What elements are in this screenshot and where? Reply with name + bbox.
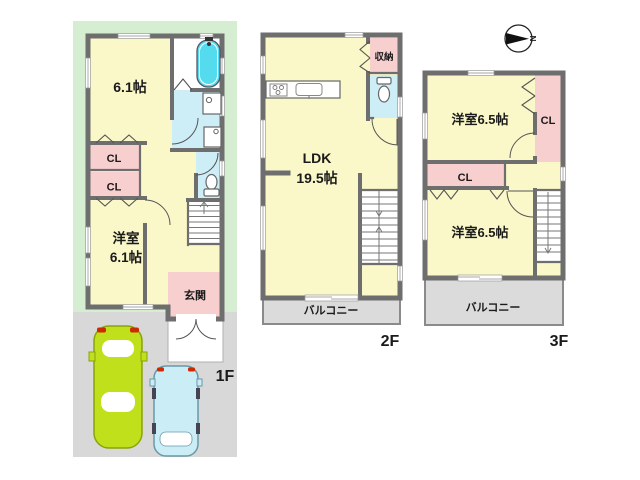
car-taillight — [157, 368, 164, 372]
balcony-label-2f: バルコニー — [304, 304, 359, 317]
room-label-bedroom-bottom-1f-name: 洋室 — [113, 230, 140, 246]
balcony-label-3f: バルコニー — [466, 301, 521, 314]
closet-label: CL — [458, 172, 473, 184]
washbasin-icon — [203, 93, 221, 114]
car-taillight — [130, 328, 139, 333]
car-taillight — [97, 328, 106, 333]
car-lime — [89, 326, 147, 448]
toilet-icon-2f — [377, 78, 391, 103]
room-label-bedroom-top-3f: 洋室6.5帖 — [451, 112, 508, 127]
floor-label-3f: 3F — [550, 333, 569, 350]
car-tire — [196, 423, 200, 434]
closet-label: CL — [107, 182, 122, 194]
car-tire — [152, 423, 156, 434]
car-taillight — [188, 368, 195, 372]
floor-plan-page: 6.1帖 CL CL 洋室 6.1帖 玄関 1F — [0, 0, 640, 480]
entrance-label: 玄関 — [184, 288, 206, 302]
car-rear-window — [102, 340, 134, 357]
car-mirror — [89, 352, 95, 361]
car-mirror — [150, 379, 155, 386]
stove-icon — [270, 84, 287, 96]
floor-plan-1f: 6.1帖 CL CL 洋室 6.1帖 玄関 1F — [73, 21, 237, 457]
room-label-bedroom-bottom-3f: 洋室6.5帖 — [451, 225, 508, 240]
floor-plan-drawing: 6.1帖 CL CL 洋室 6.1帖 玄関 1F — [0, 0, 640, 480]
closet-label: CL — [107, 153, 122, 165]
rooms-3f — [425, 73, 563, 278]
room-label-ldk-name: LDK — [303, 150, 332, 166]
room-label-bedroom-bottom-1f-size: 6.1帖 — [110, 249, 143, 265]
balcony-sliding-door — [458, 275, 502, 281]
balcony-sliding-door — [305, 295, 358, 301]
storage-label: 収納 — [374, 51, 393, 63]
kitchen-counter — [266, 81, 340, 99]
floor-plan-3f: N — [423, 25, 569, 350]
car-mirror — [141, 352, 147, 361]
car-mirror — [197, 379, 202, 386]
room-label-ldk-size: 19.5帖 — [296, 170, 337, 186]
floor-plan-2f: LDK 19.5帖 収納 バルコニー 2F — [261, 33, 403, 351]
car-tire — [196, 388, 200, 399]
closet-label: CL — [541, 115, 556, 127]
car-windshield — [160, 432, 192, 446]
car-tire — [152, 388, 156, 399]
floor-label-2f: 2F — [381, 333, 400, 350]
washing-machine-icon — [204, 127, 221, 147]
car-pale-blue — [150, 366, 202, 456]
compass-icon: N — [505, 25, 537, 52]
room-label-bedroom-top-1f: 6.1帖 — [113, 79, 146, 95]
compass-north-label: N — [528, 36, 537, 42]
floor-label-1f: 1F — [216, 368, 235, 385]
bathtub-icon — [197, 37, 220, 87]
car-windshield — [101, 392, 135, 412]
